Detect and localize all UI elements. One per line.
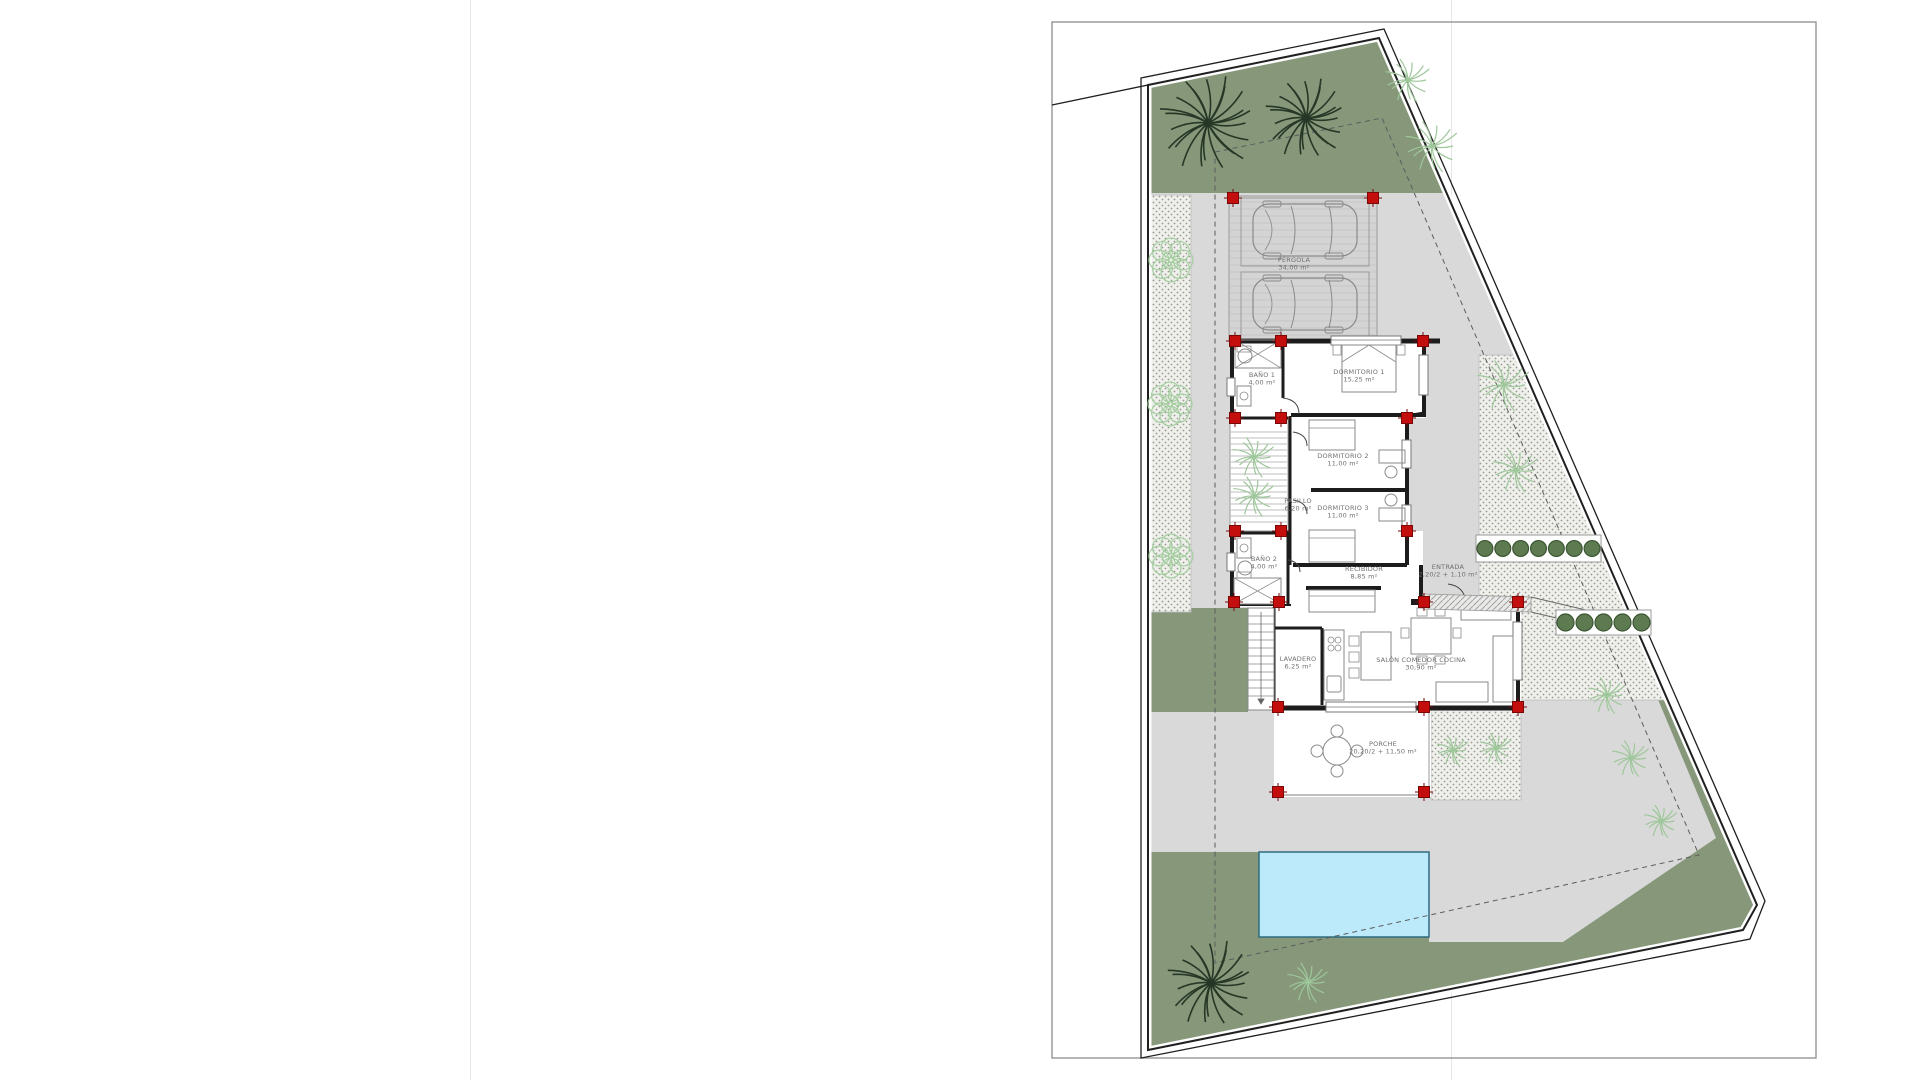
column-marker bbox=[1368, 193, 1379, 204]
gravel-patch-porch-side bbox=[1431, 710, 1521, 800]
room-area: 4,00 m² bbox=[1249, 379, 1276, 387]
hedge-bush bbox=[1595, 614, 1612, 631]
palm-center bbox=[1629, 756, 1633, 760]
palm-center bbox=[1451, 748, 1455, 752]
column-marker bbox=[1419, 702, 1430, 713]
room-label-bano2: BAÑO 24,00 m² bbox=[1251, 554, 1278, 571]
column-marker bbox=[1513, 597, 1524, 608]
garden-block-mid-left bbox=[1149, 608, 1248, 712]
room-area: 2,20/2 + 1,10 m² bbox=[1418, 571, 1477, 579]
palm-center bbox=[1605, 693, 1609, 697]
column-marker bbox=[1513, 702, 1524, 713]
palm-center bbox=[1206, 121, 1210, 125]
column-marker bbox=[1273, 787, 1284, 798]
palm-frond bbox=[1408, 80, 1426, 81]
palm-frond bbox=[1432, 146, 1453, 148]
palm-center bbox=[1252, 494, 1256, 498]
column-marker bbox=[1230, 413, 1241, 424]
room-area: 6,20 m² bbox=[1285, 505, 1312, 513]
hedge-bush bbox=[1633, 614, 1650, 631]
column-marker bbox=[1228, 193, 1239, 204]
boundary-extension-line bbox=[1052, 85, 1148, 105]
hedge-bush bbox=[1584, 541, 1600, 557]
palm-center bbox=[1306, 980, 1310, 984]
palm-center bbox=[1514, 468, 1518, 472]
column-marker bbox=[1276, 413, 1287, 424]
palm-center bbox=[1406, 78, 1410, 82]
room-area: 6,25 m² bbox=[1285, 663, 1312, 671]
column-marker bbox=[1230, 336, 1241, 347]
room-area: 30,90 m² bbox=[1405, 664, 1436, 672]
hedge-bush bbox=[1531, 541, 1547, 557]
hedge-bush bbox=[1614, 614, 1631, 631]
hedge-bush bbox=[1513, 541, 1529, 557]
palm-center bbox=[1659, 819, 1663, 823]
window-dorm1-top bbox=[1331, 336, 1401, 345]
window-dorm2-right bbox=[1402, 440, 1411, 468]
room-label-pergola: PÉRGOLA34,00 m² bbox=[1278, 255, 1311, 272]
column-marker bbox=[1276, 336, 1287, 347]
column-marker bbox=[1276, 526, 1287, 537]
room-label-lavadero: LAVADERO6,25 m² bbox=[1280, 655, 1317, 671]
column-marker bbox=[1419, 787, 1430, 798]
column-marker bbox=[1402, 413, 1413, 424]
column-marker bbox=[1230, 526, 1241, 537]
column-marker bbox=[1273, 702, 1284, 713]
palm-center bbox=[1252, 455, 1256, 459]
hedge-bush bbox=[1576, 614, 1593, 631]
column-marker bbox=[1229, 597, 1240, 608]
hedge-bush bbox=[1548, 541, 1564, 557]
drawing-sheet: PÉRGOLA34,00 m²BAÑO 14,00 m²DORMITORIO 1… bbox=[470, 0, 1452, 1080]
room-area: 34,00 m² bbox=[1278, 264, 1309, 272]
window-bano1-left bbox=[1227, 378, 1235, 396]
column-marker bbox=[1274, 597, 1285, 608]
room-label-bano1: BAÑO 14,00 m² bbox=[1249, 370, 1276, 387]
room-label-pasillo: PASILLO6,20 m² bbox=[1284, 497, 1312, 513]
palm-center bbox=[1304, 116, 1308, 120]
site-plan-svg: PÉRGOLA34,00 m²BAÑO 14,00 m²DORMITORIO 1… bbox=[471, 0, 1920, 1080]
hedge-bush bbox=[1495, 541, 1511, 557]
room-area: 11,00 m² bbox=[1327, 460, 1358, 468]
palm-center bbox=[1430, 144, 1434, 148]
hedge-bush bbox=[1566, 541, 1582, 557]
palm-center bbox=[1502, 383, 1506, 387]
screenshot-canvas: PÉRGOLA34,00 m²BAÑO 14,00 m²DORMITORIO 1… bbox=[0, 0, 1920, 1080]
swimming-pool bbox=[1259, 852, 1429, 937]
column-marker bbox=[1418, 336, 1429, 347]
window-dorm1-right bbox=[1419, 355, 1428, 395]
room-area: 8,85 m² bbox=[1351, 573, 1378, 581]
room-area: 20,20/2 + 11,50 m² bbox=[1349, 748, 1417, 756]
room-area: 4,00 m² bbox=[1251, 563, 1278, 571]
room-area: 15,25 m² bbox=[1343, 376, 1374, 384]
column-marker bbox=[1402, 526, 1413, 537]
window-salon-right bbox=[1513, 622, 1522, 680]
palm-center bbox=[1494, 746, 1498, 750]
window-bano2-left bbox=[1227, 553, 1235, 571]
hedge-bush bbox=[1477, 541, 1493, 557]
column-marker bbox=[1419, 597, 1430, 608]
room-area: 11,00 m² bbox=[1327, 512, 1358, 520]
hedge-bush bbox=[1557, 614, 1574, 631]
palm-center bbox=[1209, 981, 1213, 985]
